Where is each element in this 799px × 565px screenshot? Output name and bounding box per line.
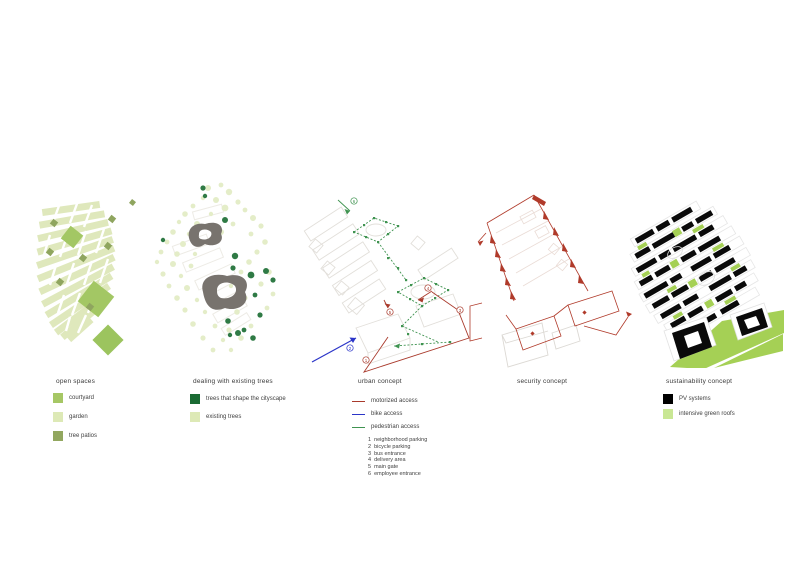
swatch-pv-systems — [663, 394, 673, 404]
legend-label-existing-trees: existing trees — [206, 414, 241, 420]
item-num: 1 — [368, 437, 371, 444]
numbered-item-2: 2 bicycle parking — [368, 444, 427, 451]
legend-label-bike-access: bike access — [371, 411, 402, 417]
item-label: bicycle parking — [374, 444, 410, 451]
item-label: employee entrance — [374, 471, 421, 478]
legend-open-spaces: open spaces courtyard garden tree patios — [53, 378, 95, 385]
legend-label-garden: garden — [69, 414, 88, 420]
legend-label-pedestrian-access: pedestrian access — [371, 424, 419, 430]
swatch-garden — [53, 412, 63, 422]
urban-concept-diagram: 6 4 3 5 1 2 — [298, 188, 486, 380]
item-label: main gate — [374, 464, 398, 471]
numbered-item-3: 3 bus entrance — [368, 451, 427, 458]
item-num: 4 — [368, 457, 371, 464]
existing-trees-diagram — [133, 180, 288, 365]
item-num: 3 — [368, 451, 371, 458]
item-label: neighborhood parking — [374, 437, 427, 444]
sustainability-concept-diagram — [618, 193, 796, 368]
panel-title-sustainability-concept: sustainability concept — [663, 378, 732, 385]
panel-title-urban-concept: urban concept — [352, 378, 402, 385]
legend-label-tree-patios: tree patios — [69, 433, 97, 439]
swatch-existing-trees — [190, 412, 200, 422]
swatch-tree-patios — [53, 431, 63, 441]
legend-label-pv-systems: PV systems — [679, 396, 711, 402]
panel-title-security-concept: security concept — [517, 378, 567, 385]
numbered-item-5: 5 main gate — [368, 464, 427, 471]
open-spaces-diagram — [20, 195, 150, 360]
security-concept-diagram — [466, 183, 638, 381]
legend-label-motorized-access: motorized access — [371, 398, 418, 404]
swatch-courtyard — [53, 393, 63, 403]
legend-label-green-roofs: intensive green roofs — [679, 411, 735, 417]
swatch-cityscape-trees — [190, 394, 200, 404]
legend-security-concept: security concept — [517, 378, 567, 385]
item-num: 5 — [368, 464, 371, 471]
panel-title-open-spaces: open spaces — [53, 378, 95, 385]
panel-title-existing-trees: dealing with existing trees — [190, 378, 273, 385]
legend-label-courtyard: courtyard — [69, 395, 94, 401]
concept-diagram-sheet: 6 4 3 5 1 2 — [0, 0, 799, 565]
linekey-bike-access — [352, 414, 365, 415]
swatch-green-roofs — [663, 409, 673, 419]
legend-existing-trees: dealing with existing trees trees that s… — [190, 378, 273, 385]
legend-sustainability-concept: sustainability concept PV systems intens… — [663, 378, 732, 385]
numbered-item-6: 6 employee entrance — [368, 471, 427, 478]
legend-urban-concept: urban concept motorized access bike acce… — [352, 378, 402, 385]
urban-numbered-list: 1 neighborhood parking 2 bicycle parking… — [368, 437, 427, 478]
item-label: delivery area — [374, 457, 406, 464]
numbered-item-4: 4 delivery area — [368, 457, 427, 464]
item-num: 6 — [368, 471, 371, 478]
item-num: 2 — [368, 444, 371, 451]
numbered-item-1: 1 neighborhood parking — [368, 437, 427, 444]
linekey-motorized-access — [352, 401, 365, 402]
legend-label-cityscape-trees: trees that shape the cityscape — [206, 396, 286, 402]
item-label: bus entrance — [374, 451, 406, 458]
linekey-pedestrian-access — [352, 427, 365, 428]
